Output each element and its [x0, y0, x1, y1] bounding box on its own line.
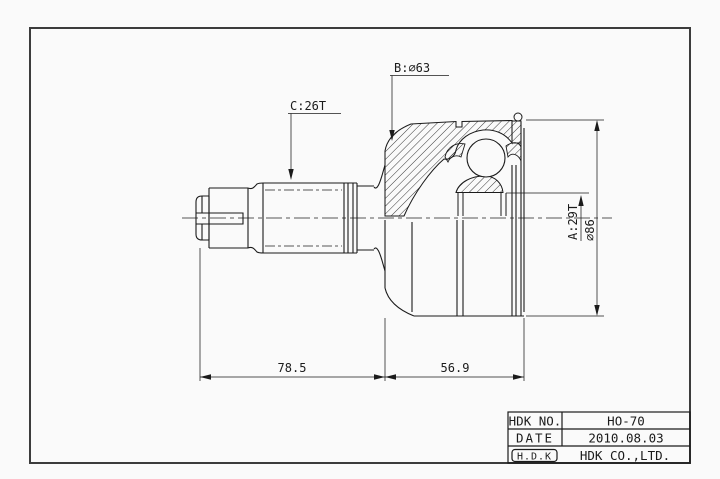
snap-ring [514, 113, 522, 121]
drawing-sheet: C:26T B:∅63 A:29T ∅86 78.5 56.9 HDK NO. … [0, 0, 720, 479]
label-outer-race-spline: B:∅63 [394, 61, 430, 75]
label-outer-diameter: ∅86 [583, 219, 597, 241]
cv-joint-technical-drawing: C:26T B:∅63 A:29T ∅86 78.5 56.9 HDK NO. … [0, 0, 720, 479]
bearing-ball [467, 139, 505, 177]
label-joint-length: 56.9 [441, 361, 470, 375]
paper-background [0, 0, 720, 479]
rim-section [512, 121, 521, 143]
title-block-no-label: HDK NO. [509, 414, 562, 429]
title-block-date-value: 2010.08.03 [588, 431, 663, 446]
label-shaft-spline: C:26T [290, 99, 326, 113]
label-inner-race-spline: A:29T [566, 204, 580, 240]
label-shaft-length: 78.5 [278, 361, 307, 375]
title-block-no-value: HO-70 [607, 414, 645, 429]
title-block-company: HDK CO.,LTD. [580, 448, 670, 463]
hdk-logo-text: H.D.K [517, 452, 552, 463]
title-block-date-label: DATE [516, 431, 554, 446]
